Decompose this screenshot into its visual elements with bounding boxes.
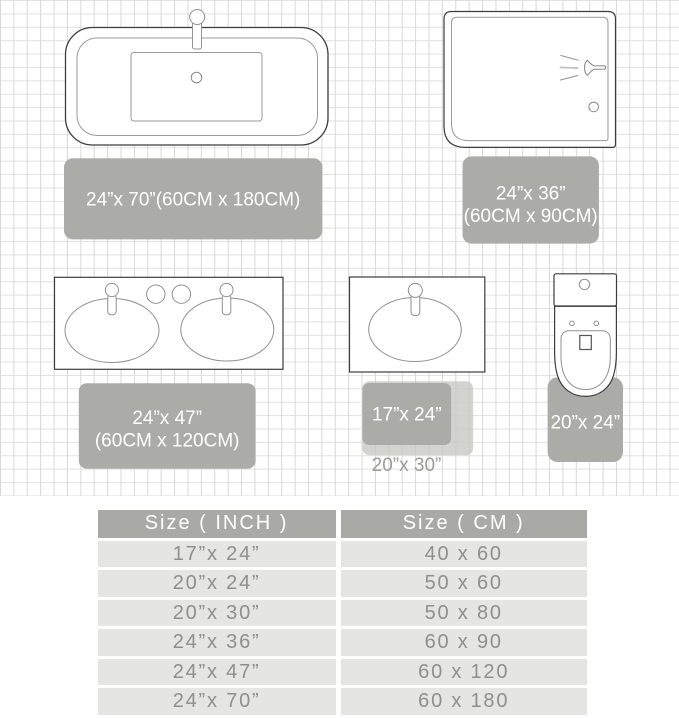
svg-text:24”x 47”: 24”x 47” <box>132 408 202 429</box>
svg-text:24”x 36”: 24”x 36” <box>496 184 566 205</box>
svg-text:17”x 24”: 17”x 24” <box>372 405 442 426</box>
svg-text:(60CM x 90CM): (60CM x 90CM) <box>464 206 598 227</box>
svg-text:(60CM x 120CM): (60CM x 120CM) <box>95 430 240 451</box>
svg-text:20”x 30”: 20”x 30” <box>372 455 442 476</box>
svg-text:24”x 70”(60CM x 180CM): 24”x 70”(60CM x 180CM) <box>86 190 300 211</box>
svg-text:20”x 24”: 20”x 24” <box>550 413 620 434</box>
